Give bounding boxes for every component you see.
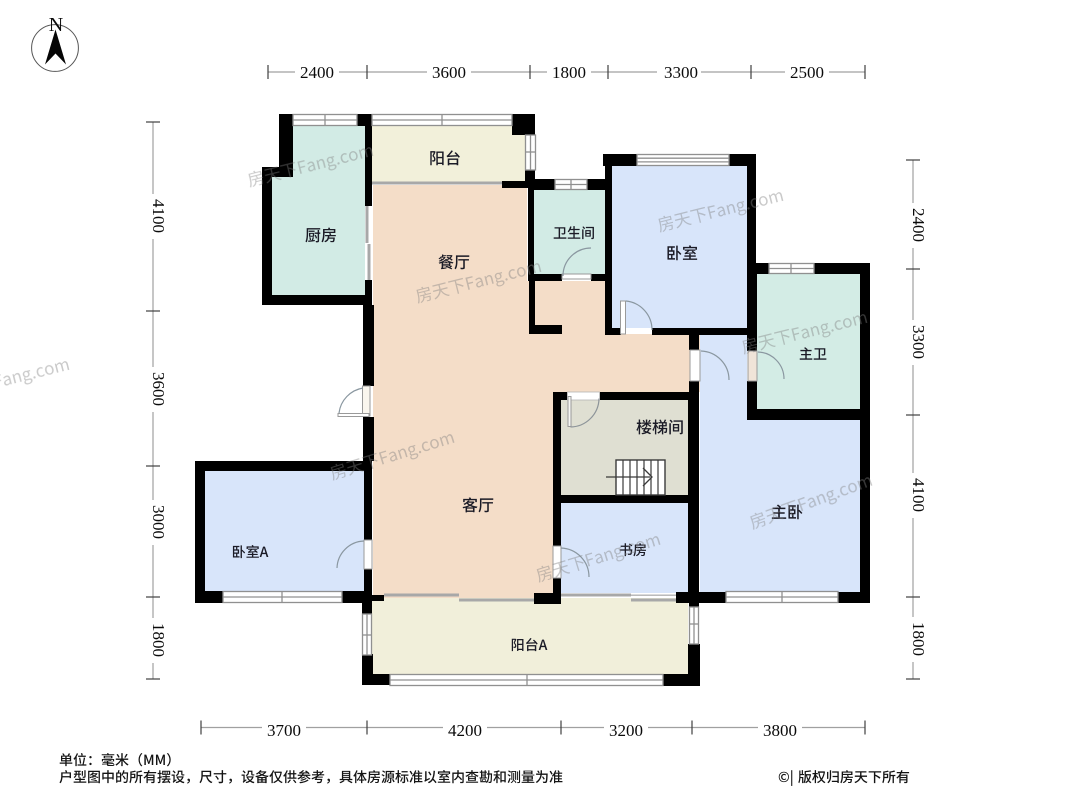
svg-text:4200: 4200 [448,721,482,740]
svg-text:2400: 2400 [909,208,928,242]
svg-text:4100: 4100 [909,478,928,512]
svg-text:2500: 2500 [790,63,824,82]
svg-text:3700: 3700 [267,721,301,740]
svg-text:3300: 3300 [664,63,698,82]
svg-text:1800: 1800 [149,623,168,657]
svg-text:3600: 3600 [149,372,168,406]
svg-text:4100: 4100 [149,199,168,233]
svg-text:3000: 3000 [149,505,168,539]
svg-text:3600: 3600 [432,63,466,82]
svg-text:2400: 2400 [300,63,334,82]
svg-text:3200: 3200 [609,721,643,740]
svg-text:1800: 1800 [552,63,586,82]
svg-text:3300: 3300 [909,325,928,359]
svg-text:3800: 3800 [763,721,797,740]
svg-text:1800: 1800 [909,622,928,656]
